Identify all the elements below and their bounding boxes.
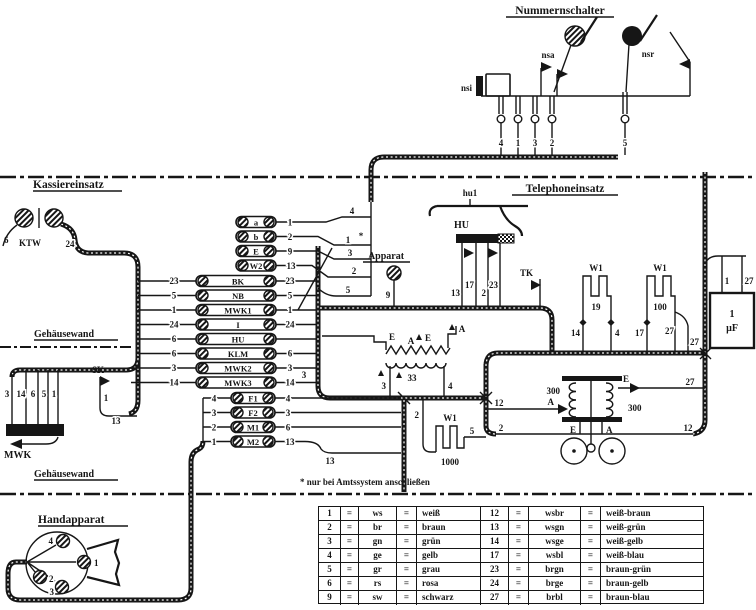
strip-row: MWK3 <box>196 377 276 388</box>
nsi-contact-label: nsi <box>461 83 473 93</box>
equals-sign: = <box>509 535 529 548</box>
wire-number: 27 <box>686 377 696 387</box>
equals-sign: = <box>509 577 529 590</box>
handset-lug-icon <box>34 571 47 584</box>
color-abbr: wsgn <box>529 521 581 534</box>
wire-number: 3 <box>382 381 387 391</box>
code-number: 14 <box>481 535 509 548</box>
wire-number: 2 <box>352 266 357 276</box>
equals-sign: = <box>397 521 417 534</box>
arrow-up-icon <box>378 370 384 376</box>
wire-number: 2 <box>212 423 217 433</box>
equals-sign: = <box>581 507 601 520</box>
color-name: weiß-grün <box>601 521 703 534</box>
wire-number: 2 <box>499 423 504 433</box>
wire-number: 13 <box>286 437 296 447</box>
color-name: weiß <box>417 507 481 520</box>
gehaeusewand-label: Gehäusewand <box>34 329 94 340</box>
apparat-label: Apparat <box>368 251 405 262</box>
color-name: grau <box>417 563 481 576</box>
equals-sign: = <box>341 507 359 520</box>
code-number: 5 <box>319 563 341 576</box>
wire-number: 1 <box>288 305 293 315</box>
color-abbr: wsbl <box>529 549 581 562</box>
color-name: gelb <box>417 549 481 562</box>
sk-label: SK <box>92 365 104 375</box>
equals-sign: = <box>341 549 359 562</box>
wire-number: 4 <box>212 394 217 404</box>
code-number: 12 <box>481 507 509 520</box>
direction-label: E <box>623 374 629 384</box>
color-name: braun-blau <box>601 591 703 605</box>
code-number: 17 <box>481 549 509 562</box>
wire-number: 5 <box>346 285 351 295</box>
arrow-up-icon <box>449 324 455 330</box>
contact-arrow-icon <box>488 248 498 258</box>
table-row: 6 = rs = rosa 24 = brge = braun-gelb <box>319 577 703 591</box>
color-name: weiß-braun <box>601 507 703 520</box>
terminal-number: 2 <box>49 574 54 584</box>
wire-number: 4 <box>350 206 355 216</box>
color-abbr: gn <box>359 535 397 548</box>
wire-number: 23 <box>489 280 499 290</box>
hu-label: HU <box>454 220 469 231</box>
contact-arrow-icon <box>464 248 474 258</box>
equals-sign: = <box>581 591 601 605</box>
equals-sign: = <box>341 521 359 534</box>
color-abbr: rs <box>359 577 397 590</box>
equals-sign: = <box>581 549 601 562</box>
dial-terminal-number: 5 <box>623 138 628 148</box>
capacitor-1uf: 1 27 1 µF <box>705 256 754 348</box>
wire-number: 4 <box>615 328 620 338</box>
color-name: braun <box>417 521 481 534</box>
hu-contact-bar-end <box>498 234 514 243</box>
color-abbr: ws <box>359 507 397 520</box>
dial-terminal-number: 3 <box>533 138 538 148</box>
equals-sign: = <box>397 577 417 590</box>
resistor-w1-1000: 2 W1 1000 5 <box>415 400 487 467</box>
color-abbr: brge <box>529 577 581 590</box>
terminal-label: b <box>254 232 259 242</box>
wire-number: 2 <box>415 410 420 420</box>
gehaeusewand-label: Gehäusewand <box>34 469 94 480</box>
strip-row: F2 <box>231 407 275 418</box>
wire-number: 3 <box>288 363 293 373</box>
dial-cam-disc-icon <box>565 26 585 46</box>
color-abbr: gr <box>359 563 397 576</box>
equals-sign: = <box>341 535 359 548</box>
wire-number: 1 <box>104 393 109 403</box>
coil-value: 300 <box>547 386 561 396</box>
table-row: 1 = ws = weiß 12 = wsbr = weiß-braun <box>319 507 703 521</box>
wire-number: 14 <box>571 328 581 338</box>
resistor-label: W1 <box>443 413 457 423</box>
wire-number: 6 <box>286 423 291 433</box>
equals-sign: = <box>509 507 529 520</box>
equals-sign: = <box>341 563 359 576</box>
nsr-contact-label: nsr <box>642 49 655 59</box>
terminal-label: W2 <box>250 261 263 271</box>
handset-mouthpiece <box>87 540 119 585</box>
code-number: 9 <box>319 591 341 605</box>
color-name: weiß-blau <box>601 549 703 562</box>
color-abbr: wsbr <box>529 507 581 520</box>
mwk-bank: 3 14 6 5 1 MWK SK 1 13 <box>4 365 137 461</box>
wire-number: 13 <box>326 456 336 466</box>
wire-number: 1 <box>52 389 57 399</box>
arrow-up-icon <box>396 372 402 378</box>
wire-number: 5 <box>42 389 47 399</box>
equals-sign: = <box>509 521 529 534</box>
terminal-label: F1 <box>248 394 257 404</box>
resistor-value: 19 <box>592 302 602 312</box>
equals-sign: = <box>397 507 417 520</box>
strip-row: M1 <box>231 422 275 433</box>
strip-row: M2 <box>231 436 275 447</box>
terminal-label: MWK2 <box>224 364 251 374</box>
arrow-right-icon <box>558 404 568 414</box>
capacitor-body <box>710 293 754 348</box>
table-row: 3 = gn = grün 14 = wsge = weiß-gelb <box>319 535 703 549</box>
code-number: 1 <box>319 507 341 520</box>
wire-number: 23 <box>286 276 296 286</box>
equals-sign: = <box>581 563 601 576</box>
wire-number: 13 <box>112 416 122 426</box>
equals-sign: = <box>581 577 601 590</box>
direction-label: A <box>548 397 555 407</box>
color-code-table: 1 = ws = weiß 12 = wsbr = weiß-braun 2 =… <box>318 506 704 604</box>
capacitor-unit: µF <box>726 323 738 334</box>
table-row: 4 = ge = gelb 17 = wsbl = weiß-blau <box>319 549 703 563</box>
wire-number: 4 <box>286 394 291 404</box>
color-name: weiß-gelb <box>601 535 703 548</box>
transformer-33: E A E A 33 3 4 <box>322 324 466 396</box>
nsa-contact-label: nsa <box>541 50 555 60</box>
code-number: 2 <box>319 521 341 534</box>
code-number: 24 <box>481 577 509 590</box>
equals-sign: = <box>581 535 601 548</box>
wire-number: 13 <box>287 261 297 271</box>
terminal-label: F2 <box>248 408 257 418</box>
wire-number: 9 <box>386 290 391 300</box>
winding-loops <box>386 363 446 368</box>
wire-number: 24 <box>286 320 296 330</box>
apparat-ground: Apparat 9 <box>363 251 410 306</box>
code-number: 6 <box>319 577 341 590</box>
direction-label: A <box>408 336 415 346</box>
color-name: schwarz <box>417 591 481 605</box>
equals-sign: = <box>509 549 529 562</box>
wire-number: 14 <box>286 378 296 388</box>
table-row: 5 = gr = grau 23 = brgn = braun-grün <box>319 563 703 577</box>
equals-sign: = <box>509 591 529 605</box>
strip-row: HU <box>196 334 276 345</box>
wire-number: 6 <box>172 334 177 344</box>
coil-left <box>569 383 576 417</box>
color-name: rosa <box>417 577 481 590</box>
code-number: 4 <box>319 549 341 562</box>
terminal-number: 1 <box>94 558 99 568</box>
handapparat: Handapparat Gehäusewand 4 1 2 3 <box>26 469 128 597</box>
telephoneinsatz: Telephoneinsatz hu1 HU 13 17 2 23 TK <box>430 183 618 306</box>
strip-row: a <box>236 217 276 228</box>
color-name: braun-grün <box>601 563 703 576</box>
wire-number: 17 <box>465 280 475 290</box>
wire-number: 27 <box>665 326 675 336</box>
ktw-label: KTW <box>19 238 41 248</box>
transformer-id: 33 <box>408 373 418 383</box>
direction-label: E <box>425 333 431 343</box>
nummernschalter: Nummernschalter nsi nsa nsr <box>461 5 690 155</box>
arrow-left-icon <box>10 439 22 449</box>
mwk-contact-bar <box>6 424 64 436</box>
wire-number: 1 <box>212 437 217 447</box>
equals-sign: = <box>581 521 601 534</box>
resistor-value: 1000 <box>441 457 460 467</box>
handset-lug-icon <box>78 556 91 569</box>
hu1-contact-label: hu1 <box>463 188 478 198</box>
dial-terminal-number: 2 <box>550 138 555 148</box>
equals-sign: = <box>397 535 417 548</box>
tk-label: TK <box>520 268 533 278</box>
strip-row: NB <box>196 290 276 301</box>
winding-zigzag <box>386 346 450 354</box>
dial-terminal-number: 4 <box>499 138 504 148</box>
resistor-label: W1 <box>589 263 603 273</box>
receiver: 12 A 300 E 27 300 E A 2 12 <box>486 374 705 464</box>
dial-terminal-number: 1 <box>516 138 521 148</box>
nummernschalter-title: Nummernschalter <box>515 5 604 17</box>
wire-number: 6 <box>4 235 9 245</box>
schematic-page: Nummernschalter nsi nsa nsr <box>0 0 756 610</box>
kassiereinsatz-title: Kassiereinsatz <box>33 179 104 191</box>
strip-row: KLM <box>196 348 276 359</box>
equals-sign: = <box>341 591 359 605</box>
terminal-label: M1 <box>247 423 259 433</box>
wire-number: 14 <box>170 378 180 388</box>
strip-row: BK <box>196 276 276 287</box>
equals-sign: = <box>509 563 529 576</box>
code-number: 3 <box>319 535 341 548</box>
ktw-contact-icon <box>45 209 63 227</box>
equals-sign: = <box>397 549 417 562</box>
wire-number: 2 <box>482 288 487 298</box>
wire-number: 3 <box>348 248 353 258</box>
coil-value: 300 <box>628 403 642 413</box>
color-abbr: sw <box>359 591 397 605</box>
direction-label: E <box>389 332 395 342</box>
wire-number: 5 <box>470 426 475 436</box>
wire-number: 3 <box>5 389 10 399</box>
wire-number: 5 <box>172 291 177 301</box>
wire-number: 6 <box>31 389 36 399</box>
strip-row: W2 <box>236 260 276 271</box>
wire-number: 14 <box>17 389 27 399</box>
resistor-value: 100 <box>653 302 667 312</box>
wire-number: 13 <box>451 288 461 298</box>
strip-row: b <box>236 231 276 242</box>
strip-row: MWK2 <box>196 363 276 374</box>
kassiereinsatz: Kassiereinsatz 6 KTW 24 Gehäusewand <box>3 179 122 340</box>
contact-flag-icon <box>100 376 110 386</box>
table-row: 9 = sw = schwarz 27 = brbl = braun-blau <box>319 591 703 605</box>
resistor-label: W1 <box>653 263 667 273</box>
ground-lug-icon <box>387 266 401 280</box>
equals-sign: = <box>397 591 417 605</box>
wire-number: 12 <box>684 423 694 433</box>
wire-number: 1 <box>172 305 177 315</box>
color-name: braun-gelb <box>601 577 703 590</box>
coil-right <box>606 383 613 417</box>
wire-number: 9 <box>288 247 293 257</box>
dial-cam-disc-icon <box>622 26 642 46</box>
code-number: 23 <box>481 563 509 576</box>
arrow-up-icon <box>416 334 422 340</box>
strip-row: MWK1 <box>196 305 276 316</box>
strip-row: I <box>196 319 276 330</box>
mwk-label: MWK <box>4 450 31 461</box>
handapparat-title: Handapparat <box>38 514 105 526</box>
wire-number: 12 <box>495 398 505 408</box>
footnote: * nur bei Amtssystem anschließen <box>300 477 430 487</box>
telephoneinsatz-title: Telephoneinsatz <box>526 183 605 195</box>
terminal-label: MWK1 <box>224 306 251 316</box>
arrow-right-icon <box>630 383 640 393</box>
color-abbr: brgn <box>529 563 581 576</box>
terminal-label: KLM <box>228 349 248 359</box>
terminal-label: NB <box>232 291 244 301</box>
wire-number: 17 <box>635 328 645 338</box>
wire-number: 2 <box>288 232 293 242</box>
wire-number: 3 <box>302 370 307 380</box>
wire-number: 27 <box>745 276 755 286</box>
wire-number: 1 <box>725 276 730 286</box>
wire-number: 24 <box>66 239 76 249</box>
equals-sign: = <box>397 563 417 576</box>
wire-number: 1 <box>288 218 293 228</box>
terminal-number: 4 <box>49 536 54 546</box>
equals-sign: = <box>341 577 359 590</box>
color-name: grün <box>417 535 481 548</box>
terminal-label: E <box>253 247 259 257</box>
wire-number: 24 <box>170 320 180 330</box>
capacitor-value: 1 <box>730 309 735 320</box>
ktw-contact-icon <box>15 209 33 227</box>
terminal-label: M2 <box>247 437 259 447</box>
terminal-label: MWK3 <box>224 378 251 388</box>
terminal-label: BK <box>232 277 245 287</box>
wire-number: 1 <box>346 235 351 245</box>
resistor-w1-100: W1 100 17 27 27 <box>635 263 700 351</box>
color-abbr: brbl <box>529 591 581 605</box>
wire-number: 23 <box>170 276 180 286</box>
color-abbr: wsge <box>529 535 581 548</box>
wire-number: 6 <box>288 349 293 359</box>
wire-number: 3 <box>286 408 291 418</box>
color-abbr: ge <box>359 549 397 562</box>
asterisk-mark: * <box>359 231 364 241</box>
direction-label: A <box>459 324 466 334</box>
handset-lug-icon <box>57 535 70 548</box>
resistor-w1-19: W1 19 14 4 <box>571 263 620 351</box>
wire-number: 5 <box>288 291 293 301</box>
color-abbr: br <box>359 521 397 534</box>
strip-row: E <box>236 246 276 257</box>
wire-number: 27 <box>690 337 700 347</box>
code-number: 13 <box>481 521 509 534</box>
strip-row: F1 <box>231 393 275 404</box>
terminal-label: HU <box>232 335 245 345</box>
wire-number: 4 <box>448 381 453 391</box>
handset-lug-icon <box>56 581 69 594</box>
table-row: 2 = br = braun 13 = wsgn = weiß-grün <box>319 521 703 535</box>
wire-number: 6 <box>172 349 177 359</box>
code-number: 27 <box>481 591 509 605</box>
wire-number: 3 <box>172 363 177 373</box>
terminal-number: 3 <box>50 587 55 597</box>
wire-number: 3 <box>212 408 217 418</box>
